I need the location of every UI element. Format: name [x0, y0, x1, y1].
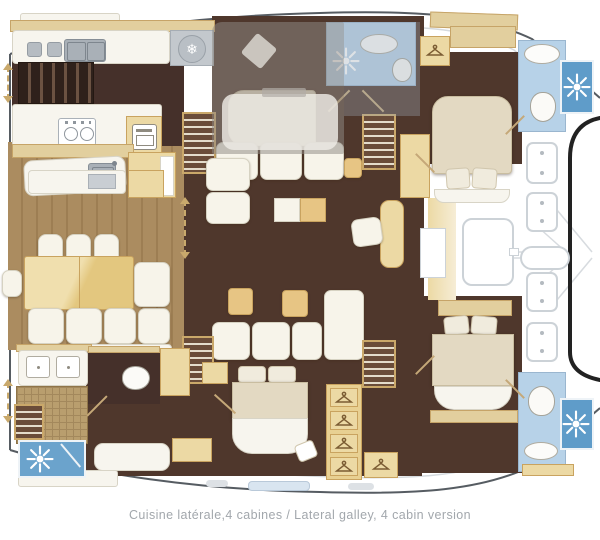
bathroom-sink [524, 44, 560, 64]
deck-detail [206, 480, 228, 487]
companionway-stairs-port-fwd [362, 114, 396, 170]
stool [2, 270, 22, 297]
hanger-icon [334, 414, 354, 427]
bed-headboard [438, 300, 512, 316]
deck-detail [348, 483, 374, 490]
toilet [122, 366, 150, 390]
galley-louver-cabinet [18, 62, 94, 104]
coffee-table [274, 198, 300, 222]
salon-sofa-cushion [206, 158, 250, 191]
snowflake-icon: ❄ [178, 35, 206, 63]
nav-chair [350, 216, 384, 248]
pouf [228, 288, 253, 315]
dinette-table [24, 256, 134, 310]
salon-sofa-cushion [212, 322, 250, 360]
sun-icon [561, 409, 591, 439]
stbd-mid-bed [232, 382, 308, 420]
stove-burners [58, 118, 96, 146]
pouf [344, 158, 362, 178]
vanity-sink [56, 356, 80, 378]
vanity-sink [26, 356, 50, 378]
hanger-icon [334, 437, 354, 450]
sun-icon [25, 444, 55, 474]
bathroom-locker [160, 348, 190, 396]
bed-headboard [450, 26, 516, 48]
deck-hatch [526, 142, 558, 184]
bed-foot [434, 189, 510, 203]
deck-hatch [526, 322, 558, 362]
cabin-locker [400, 134, 430, 198]
cabinet [128, 170, 164, 198]
salon-sofa-cushion [206, 192, 250, 224]
steps [14, 404, 44, 440]
caption: Cuisine latérale,4 cabines / Lateral gal… [0, 508, 600, 522]
dinette-sofa-cushion [104, 308, 136, 344]
cabin-wall [430, 410, 518, 423]
bathroom-sink [524, 442, 558, 460]
dinette-sofa-cushion [138, 308, 170, 344]
bed-foot [434, 386, 512, 410]
stbd-fwd-bed [432, 334, 514, 386]
pillow [445, 167, 470, 190]
salon-sofa-cushion [324, 290, 364, 360]
catamaran-floorplan: ❄ [0, 0, 600, 540]
flybridge-sunbed [222, 94, 338, 150]
fwd-cockpit-hatch [462, 218, 514, 286]
pillow [238, 366, 266, 383]
toilet [530, 92, 556, 122]
hanger-icon [371, 458, 391, 471]
trampoline-beam [570, 118, 600, 380]
coffee-table [300, 198, 326, 222]
nav-desk [380, 200, 404, 268]
companionway-stairs-stbd-fwd [362, 340, 396, 388]
port-fwd-bed [432, 96, 512, 174]
toilet [528, 386, 555, 416]
passage-arrow [7, 382, 9, 420]
dinette-sofa-cushion [134, 262, 170, 307]
pillow [470, 315, 498, 336]
bathroom-cabinet [522, 464, 574, 476]
galley-appliance [47, 42, 62, 57]
cabinet [172, 438, 212, 462]
passage-arrow [7, 66, 9, 100]
flybridge-footprint [344, 22, 420, 116]
salon-sofa-cushion [252, 322, 290, 360]
double-sink [64, 39, 106, 62]
galley-appliance [27, 42, 42, 57]
pillow [471, 167, 497, 190]
dinette-sofa-cushion [66, 308, 102, 344]
windlass [520, 246, 570, 270]
deck-window [248, 481, 310, 491]
sun-icon [562, 72, 592, 102]
flybridge-table [262, 88, 306, 97]
hanger-icon [334, 391, 354, 404]
deck-hatch [526, 272, 558, 312]
dinette-sofa-cushion [28, 308, 64, 344]
deck-hatch [526, 192, 558, 232]
fwd-cockpit-door [420, 228, 446, 278]
pouf [282, 290, 308, 317]
bathroom-wall [88, 346, 160, 353]
pillow [268, 366, 296, 383]
oven-icon [132, 124, 157, 150]
sideboard-tray [88, 174, 116, 189]
hanger-icon [425, 44, 445, 57]
nightstand [202, 362, 228, 384]
passage-arrow [184, 200, 186, 256]
bench [94, 443, 170, 471]
salon-sofa-cushion [292, 322, 322, 360]
hanger-icon [334, 460, 354, 473]
